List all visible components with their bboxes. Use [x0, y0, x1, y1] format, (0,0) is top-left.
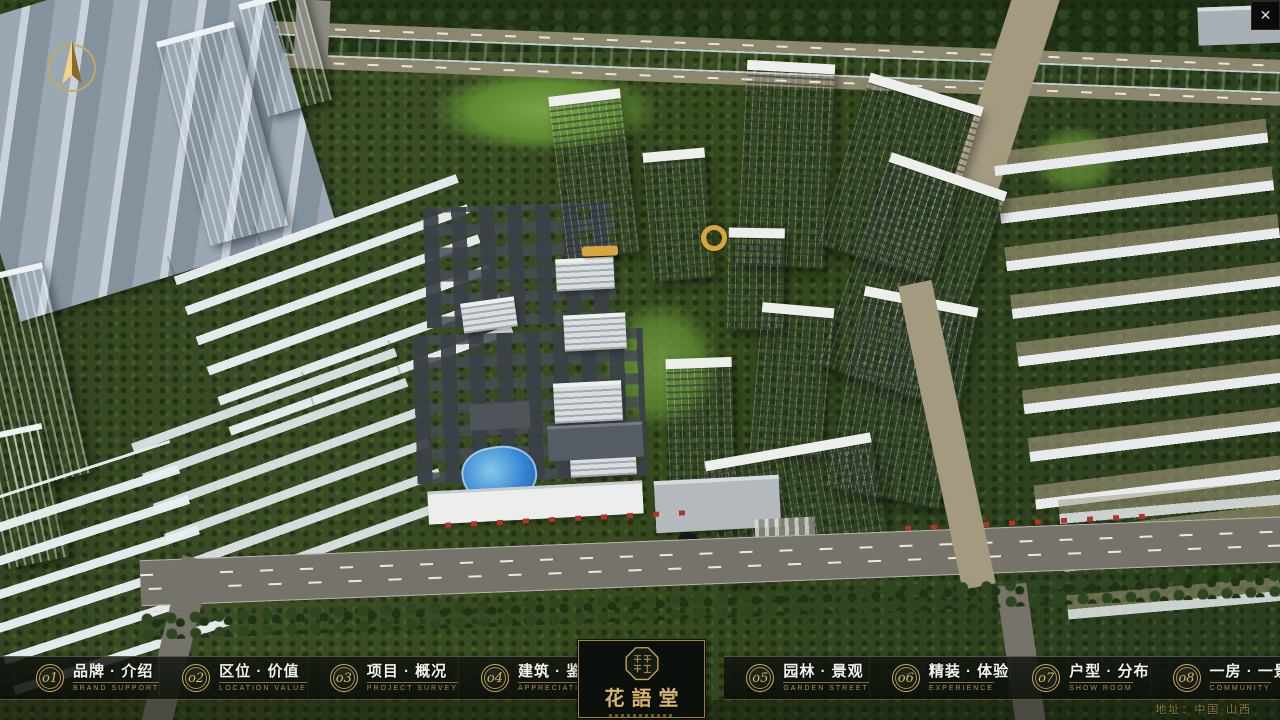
nav-item-project[interactable]: o3 项目 · 概况 PROJECT SURVEY — [308, 657, 459, 699]
nav-item-subtitle: PROJECT SURVEY — [367, 682, 458, 692]
nav-item-title: 项目 · 概况 — [367, 664, 458, 679]
nav-number-badge: o2 — [182, 664, 210, 692]
nav-item-title: 区位 · 价值 — [219, 664, 307, 679]
nav-number-badge: o5 — [746, 664, 774, 692]
nav-item-subtitle: BRAND SUPPORT — [73, 682, 159, 692]
logo-subtitle-line — [609, 714, 675, 717]
nav-item-community[interactable]: o8 一房 · 一景 COMMUNITY — [1151, 657, 1280, 699]
nav-item-subtitle: LOCATION VALUE — [219, 682, 307, 692]
nav-item-brand[interactable]: o1 品牌 · 介绍 BRAND SUPPORT — [14, 657, 160, 699]
nav-item-interior[interactable]: o6 精装 · 体验 EXPERIENCE — [870, 657, 1010, 699]
nav-number-badge: o3 — [330, 664, 358, 692]
project-logo-title: 花語堂 — [598, 682, 686, 711]
presentation-window: ✕ o1 品牌 · 介绍 BRAND SUPPORT o2 区位 · 价值 LO… — [0, 0, 1280, 720]
nav-item-garden[interactable]: o5 园林 · 景观 GARDEN STREET — [724, 657, 870, 699]
midrise-block — [553, 380, 623, 424]
nav-number-badge: o7 — [1032, 664, 1060, 692]
address-text: 地址：中国·山西 — [1155, 701, 1252, 717]
nav-item-subtitle: COMMUNITY — [1210, 682, 1271, 692]
gold-shuttle — [582, 245, 618, 256]
nav-group-right: o5 园林 · 景观 GARDEN STREET o6 精装 · 体验 EXPE… — [724, 656, 1280, 700]
nav-item-subtitle: SHOW ROOM — [1069, 682, 1133, 692]
tower-building — [750, 302, 835, 458]
tower-building — [642, 148, 715, 283]
nav-item-title: 户型 · 分布 — [1069, 664, 1149, 679]
map-3d-view[interactable] — [0, 0, 1280, 720]
close-button[interactable]: ✕ — [1251, 1, 1280, 30]
nav-item-title: 园林 · 景观 — [783, 664, 869, 679]
gold-landmark — [701, 225, 727, 251]
nav-number-badge: o1 — [36, 664, 64, 692]
compass-icon — [44, 36, 102, 98]
logo-seal-icon — [623, 646, 661, 681]
nav-item-title: 精装 · 体验 — [929, 664, 1009, 679]
midrise-block — [563, 312, 627, 351]
nav-number-badge: o8 — [1173, 664, 1201, 692]
nav-item-title: 一房 · 一景 — [1210, 664, 1280, 679]
nav-item-floorplan[interactable]: o7 户型 · 分布 SHOW ROOM — [1010, 657, 1150, 699]
roof-building — [469, 401, 530, 430]
roof-building — [547, 422, 644, 462]
nav-item-subtitle: GARDEN STREET — [783, 682, 869, 692]
nav-item-title: 品牌 · 介绍 — [73, 664, 159, 679]
midrise-block — [555, 257, 615, 292]
nav-number-badge: o4 — [481, 664, 509, 692]
nav-item-location[interactable]: o2 区位 · 价值 LOCATION VALUE — [160, 657, 308, 699]
nav-group-left: o1 品牌 · 介绍 BRAND SUPPORT o2 区位 · 价值 LOCA… — [0, 656, 599, 700]
nav-item-subtitle: EXPERIENCE — [929, 682, 994, 692]
project-logo-panel[interactable]: 花語堂 — [578, 640, 705, 718]
nav-number-badge: o6 — [892, 664, 920, 692]
